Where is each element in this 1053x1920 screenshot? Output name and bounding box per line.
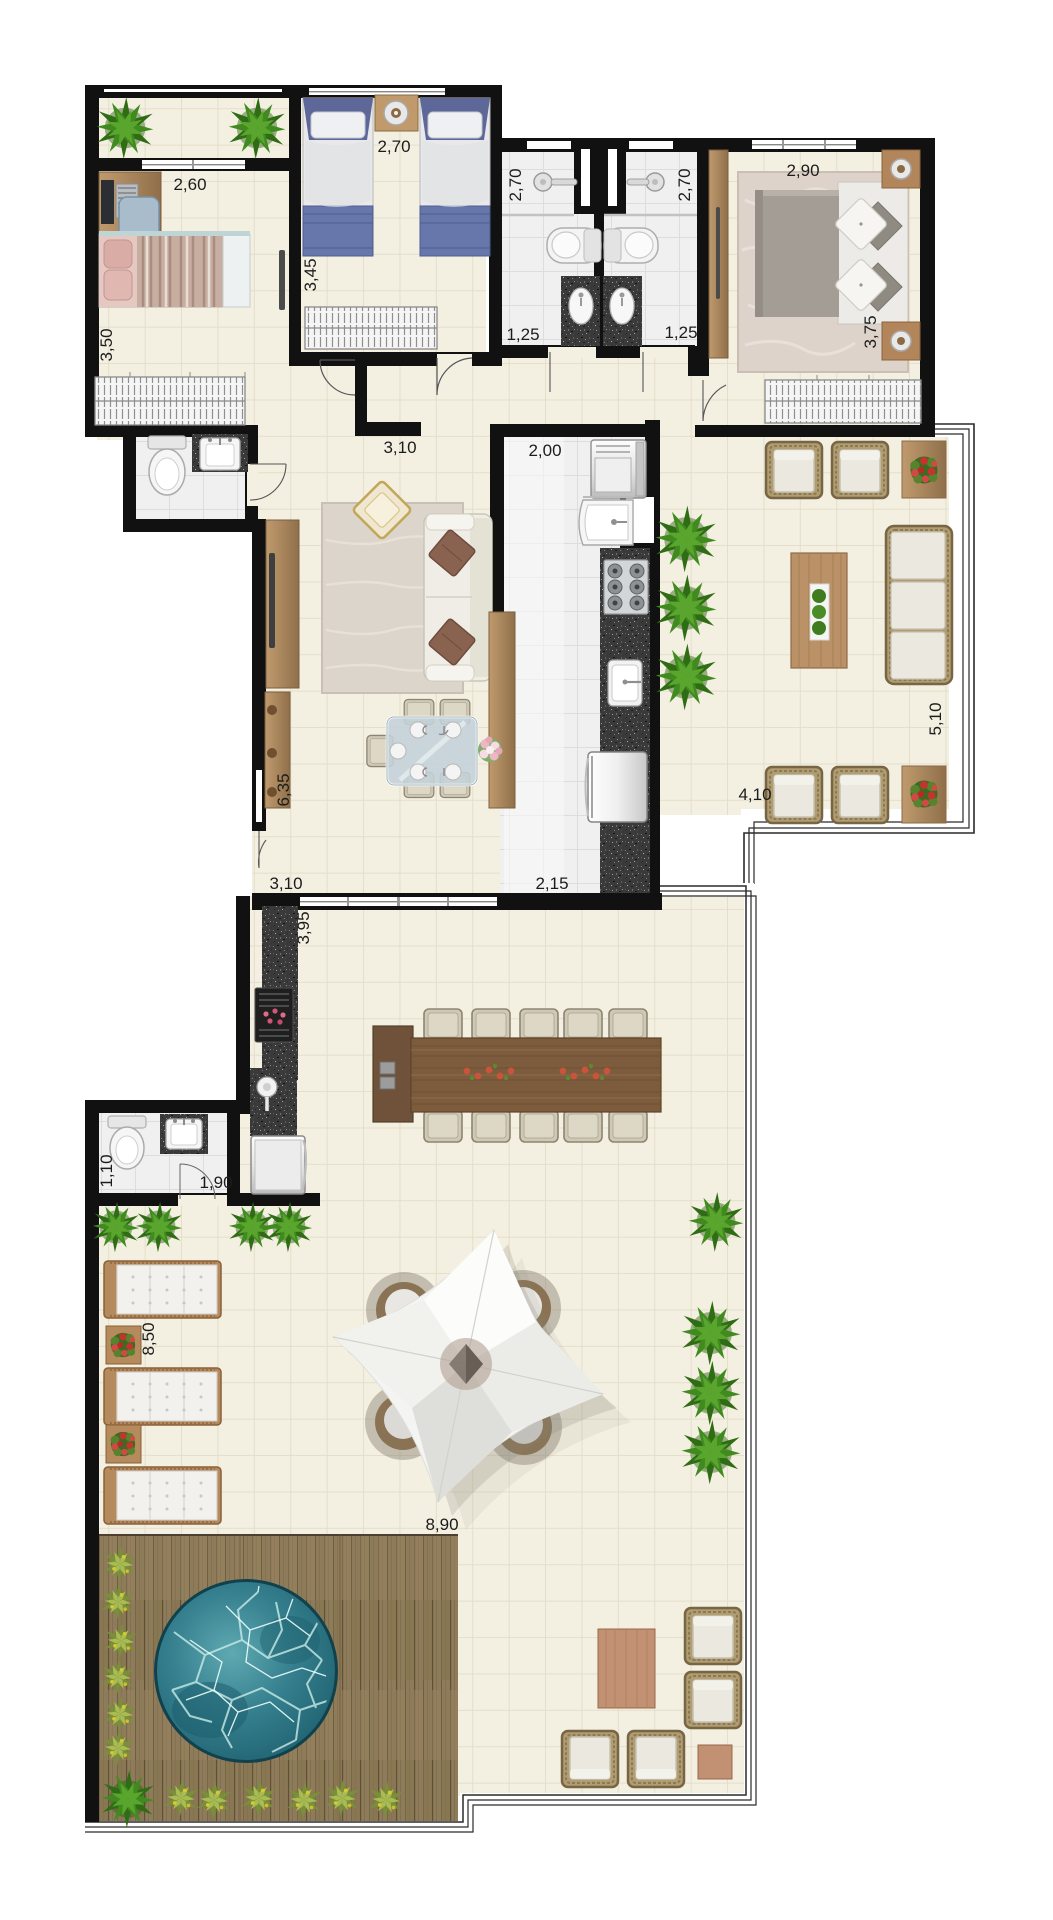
svg-text:1,25: 1,25	[506, 325, 539, 344]
svg-text:2,70: 2,70	[506, 168, 525, 201]
svg-text:3,75: 3,75	[861, 315, 880, 348]
svg-text:2,90: 2,90	[786, 161, 819, 180]
svg-text:1,10: 1,10	[97, 1154, 116, 1187]
svg-text:4,10: 4,10	[738, 785, 771, 804]
svg-text:2,70: 2,70	[377, 137, 410, 156]
svg-text:6,35: 6,35	[274, 773, 293, 806]
svg-text:3,10: 3,10	[269, 874, 302, 893]
svg-text:2,15: 2,15	[535, 874, 568, 893]
svg-text:3,10: 3,10	[383, 438, 416, 457]
svg-text:1,90: 1,90	[199, 1173, 232, 1192]
svg-text:5,10: 5,10	[926, 702, 945, 735]
svg-text:3,45: 3,45	[301, 258, 320, 291]
svg-text:1,25: 1,25	[664, 323, 697, 342]
svg-text:3,95: 3,95	[294, 911, 313, 944]
svg-text:3,50: 3,50	[97, 328, 116, 361]
svg-text:2,00: 2,00	[528, 441, 561, 460]
svg-text:2,70: 2,70	[675, 168, 694, 201]
svg-text:2,60: 2,60	[173, 175, 206, 194]
svg-text:8,90: 8,90	[425, 1515, 458, 1534]
svg-text:8,50: 8,50	[139, 1322, 158, 1355]
